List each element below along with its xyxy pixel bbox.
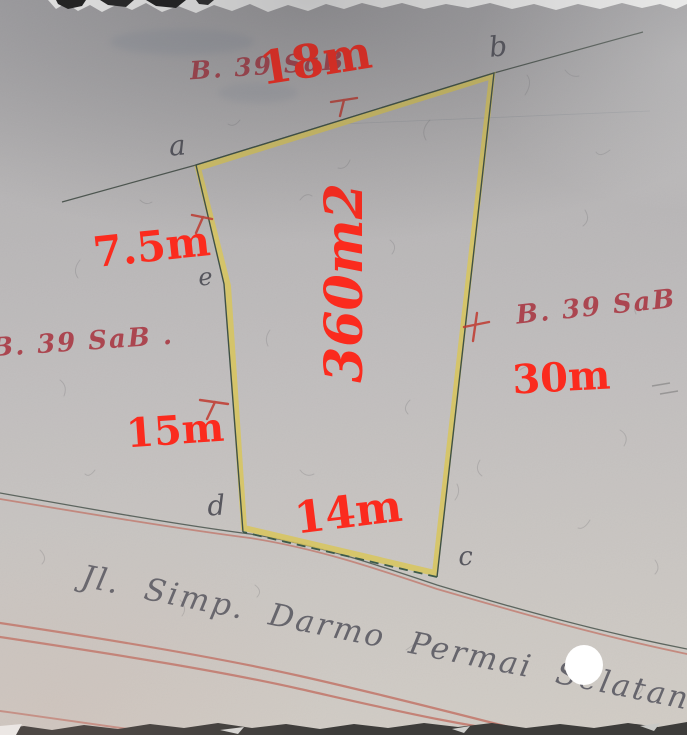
survey-drawing: B. 39 SaB B. 39 SaB . B. 39 SaB . 18m 7.… [0,0,687,735]
corner-label-b: b [487,29,508,64]
scanned-survey-map: B. 39 SaB B. 39 SaB . B. 39 SaB . 18m 7.… [0,0,687,735]
corner-label-e: e [197,263,213,292]
measurement-left-lower-15m: 15m [125,404,226,458]
area-label-360m2: 360m2 [314,183,375,383]
corner-label-c: c [458,542,475,573]
measurement-right-30m: 30m [511,351,611,403]
corner-label-a: a [167,128,187,162]
corner-label-d: d [206,488,226,522]
white-dot-marker [565,645,603,685]
